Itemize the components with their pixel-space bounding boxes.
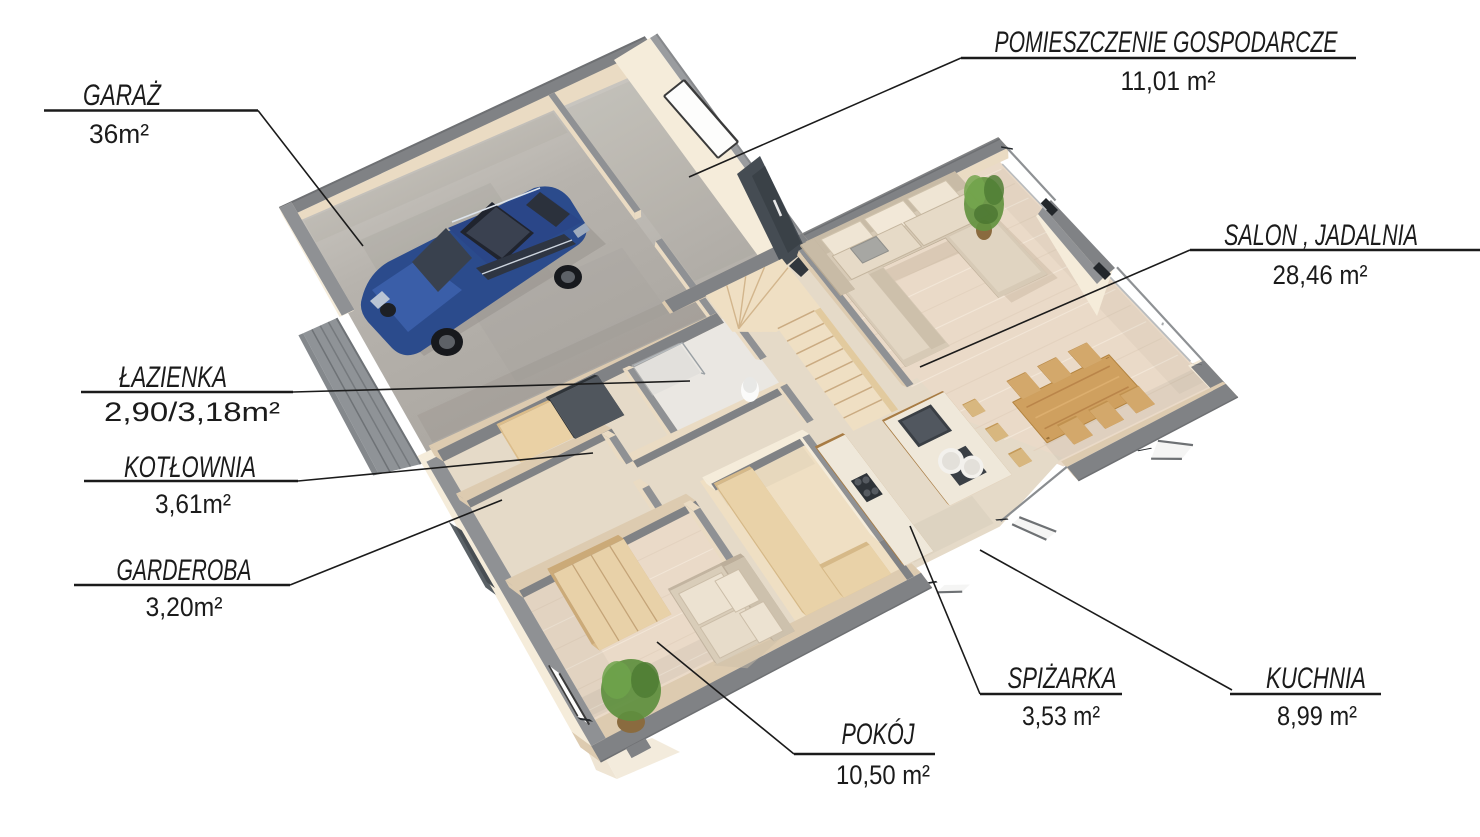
- svg-text:GARDEROBA: GARDEROBA: [117, 554, 252, 587]
- svg-text:SALON , JADALNIA: SALON , JADALNIA: [1224, 219, 1418, 252]
- svg-text:8,99 m²: 8,99 m²: [1277, 701, 1357, 731]
- svg-text:28,46 m²: 28,46 m²: [1273, 260, 1368, 290]
- svg-text:3,61m²: 3,61m²: [155, 489, 231, 519]
- svg-text:3,53 m²: 3,53 m²: [1022, 701, 1100, 731]
- svg-text:GARAŻ: GARAŻ: [83, 79, 162, 112]
- svg-text:2,90/3,18m²: 2,90/3,18m²: [104, 397, 280, 427]
- svg-text:SPIŻARKA: SPIŻARKA: [1008, 662, 1117, 695]
- svg-text:10,50 m²: 10,50 m²: [836, 760, 930, 790]
- svg-text:POKÓJ: POKÓJ: [842, 718, 916, 751]
- svg-text:36m²: 36m²: [89, 119, 149, 149]
- svg-text:11,01 m²: 11,01 m²: [1121, 66, 1216, 96]
- svg-text:KOTŁOWNIA: KOTŁOWNIA: [124, 451, 256, 484]
- svg-text:3,20m²: 3,20m²: [146, 592, 223, 622]
- svg-text:KUCHNIA: KUCHNIA: [1266, 662, 1366, 695]
- svg-text:ŁAZIENKA: ŁAZIENKA: [119, 361, 227, 394]
- svg-text:POMIESZCZENIE GOSPODARCZE: POMIESZCZENIE GOSPODARCZE: [995, 26, 1339, 59]
